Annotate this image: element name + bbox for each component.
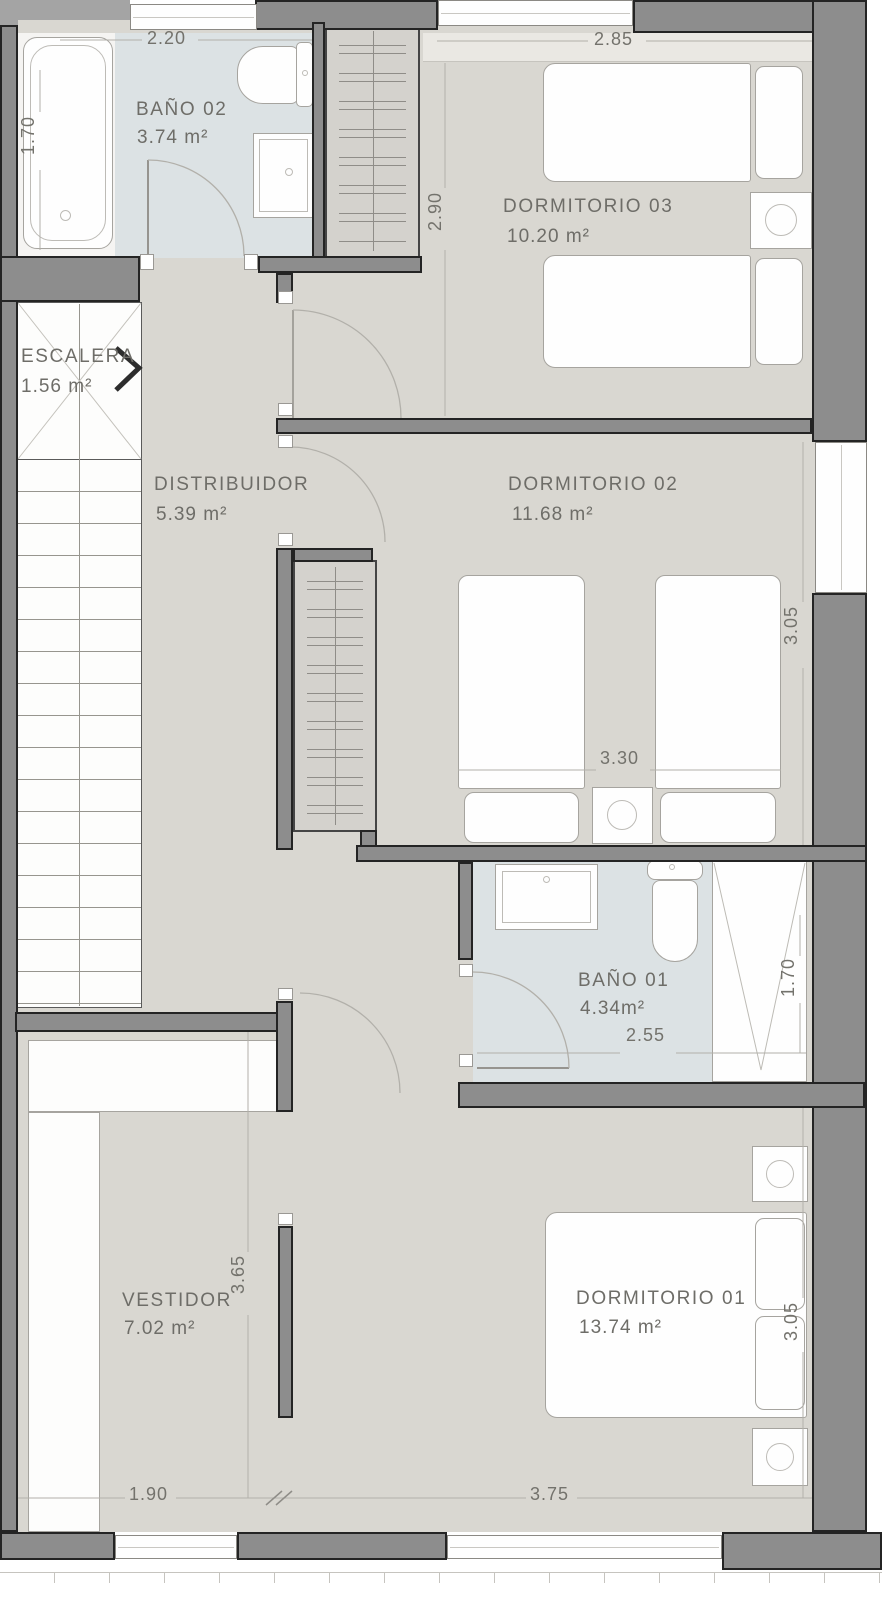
room-area-dorm01: 13.74 m² bbox=[579, 1317, 662, 1339]
sink-bano02-basin bbox=[259, 139, 308, 212]
dim-190: 1.90 bbox=[129, 1484, 168, 1505]
wall-t-horizontal bbox=[258, 256, 422, 273]
window-top-bano02 bbox=[130, 4, 257, 30]
bathtub-drain bbox=[60, 210, 71, 221]
window-bottom-dorm01 bbox=[447, 1535, 722, 1559]
wall-left bbox=[0, 25, 18, 1532]
wall-closet2-top bbox=[293, 548, 373, 562]
vestidor-counter-top bbox=[28, 1040, 278, 1112]
toilet-bano01-button bbox=[669, 864, 675, 870]
bed-dorm03-1 bbox=[543, 63, 751, 182]
wall-right-top bbox=[812, 0, 867, 442]
toilet-bano01-icon bbox=[652, 880, 698, 962]
ground-line bbox=[0, 1572, 882, 1583]
dim-170-bano01: 1.70 bbox=[778, 958, 799, 997]
dim-365: 3.65 bbox=[228, 1255, 249, 1294]
door-jamb bbox=[278, 435, 293, 448]
wall-dorm02-bottom bbox=[356, 845, 867, 862]
door-jamb bbox=[278, 1213, 293, 1225]
toilet-bano02-button bbox=[302, 70, 308, 76]
toilet-bano01-tank bbox=[647, 860, 703, 880]
dim-220: 2.20 bbox=[147, 28, 186, 49]
wall-bottom-b bbox=[237, 1532, 447, 1560]
room-area-bano02: 3.74 m² bbox=[137, 127, 208, 149]
stairs-center-line bbox=[79, 304, 80, 1006]
wall-right-mid bbox=[812, 593, 867, 1532]
window-right-dorm02 bbox=[815, 442, 867, 593]
pillow-dorm02-a bbox=[464, 792, 579, 843]
wall-bottom-c bbox=[722, 1532, 882, 1570]
wall-bano01-left bbox=[458, 862, 473, 960]
room-area-escalera: 1.56 m² bbox=[21, 376, 92, 398]
dim-305-dorm01: 3.05 bbox=[781, 1302, 802, 1341]
bed-dorm02-a bbox=[458, 575, 585, 789]
door-jamb bbox=[278, 291, 293, 304]
wall-bano02-bottom bbox=[0, 256, 140, 302]
dim-375: 3.75 bbox=[530, 1484, 569, 1505]
sink-bano02-faucet bbox=[285, 168, 293, 176]
dim-285: 2.85 bbox=[594, 29, 633, 50]
room-area-vestidor: 7.02 m² bbox=[124, 1318, 195, 1340]
window-top-dorm03 bbox=[438, 0, 633, 26]
pillow-dorm03-1 bbox=[755, 66, 803, 179]
dim-290: 2.90 bbox=[425, 192, 446, 231]
bed-dorm02-b bbox=[655, 575, 781, 789]
lamp-dorm01-top-icon bbox=[766, 1160, 794, 1188]
lamp-dorm03-icon bbox=[765, 204, 797, 236]
door-jamb bbox=[140, 254, 154, 270]
room-area-dorm03: 10.20 m² bbox=[507, 226, 590, 248]
bed-dorm03-2 bbox=[543, 255, 751, 368]
pillow-dorm02-b bbox=[660, 792, 776, 843]
door-jamb bbox=[278, 403, 293, 416]
wardrobe-dorm02-icon bbox=[293, 560, 377, 832]
wall-bottom-a bbox=[0, 1532, 115, 1560]
lamp-dorm02-icon bbox=[607, 800, 637, 830]
room-label-bano02: BAÑO 02 bbox=[136, 99, 227, 121]
room-area-dorm02: 11.68 m² bbox=[512, 504, 594, 526]
floor-plan: BAÑO 02 3.74 m² DORMITORIO 03 10.20 m² E… bbox=[0, 0, 882, 1600]
room-label-dorm02: DORMITORIO 02 bbox=[508, 474, 678, 496]
room-label-dorm01: DORMITORIO 01 bbox=[576, 1288, 746, 1310]
door-jamb bbox=[244, 254, 258, 270]
window-bottom-vestidor bbox=[115, 1535, 237, 1559]
door-jamb bbox=[459, 964, 473, 977]
wall-vestidor-top bbox=[15, 1012, 280, 1032]
wall-closet2-left bbox=[276, 548, 293, 850]
dim-255: 2.55 bbox=[626, 1025, 665, 1046]
wardrobe-top-icon bbox=[325, 24, 420, 258]
door-jamb bbox=[278, 988, 293, 1000]
dim-330: 3.30 bbox=[600, 748, 639, 769]
room-area-distribuidor: 5.39 m² bbox=[156, 504, 227, 526]
wall-vestidor-stub bbox=[276, 1001, 293, 1112]
room-label-vestidor: VESTIDOR bbox=[122, 1290, 232, 1312]
vestidor-counter-left bbox=[28, 1112, 100, 1532]
sink-bano01-faucet bbox=[543, 876, 550, 883]
door-jamb bbox=[278, 533, 293, 546]
wall-vestidor-partition bbox=[278, 1226, 293, 1418]
wall-closet-top-left bbox=[312, 22, 325, 262]
wall-bano01-bottom bbox=[458, 1082, 865, 1108]
dim-305-dorm02: 3.05 bbox=[781, 606, 802, 645]
dim-170-bano02: 1.70 bbox=[18, 116, 39, 155]
room-label-bano01: BAÑO 01 bbox=[578, 970, 669, 992]
wall-dorm03-dorm02 bbox=[276, 418, 812, 434]
room-area-bano01: 4.34m² bbox=[580, 998, 645, 1020]
wall-top-a bbox=[255, 0, 438, 30]
lamp-dorm01-bottom-icon bbox=[766, 1443, 794, 1471]
room-label-distribuidor: DISTRIBUIDOR bbox=[154, 474, 309, 496]
pillow-dorm03-2 bbox=[755, 258, 803, 365]
room-label-dorm03: DORMITORIO 03 bbox=[503, 196, 673, 218]
pillow-dorm01-1 bbox=[755, 1218, 805, 1310]
door-jamb bbox=[459, 1054, 473, 1067]
toilet-bano02-icon bbox=[237, 46, 299, 104]
room-label-escalera: ESCALERA bbox=[21, 346, 135, 368]
